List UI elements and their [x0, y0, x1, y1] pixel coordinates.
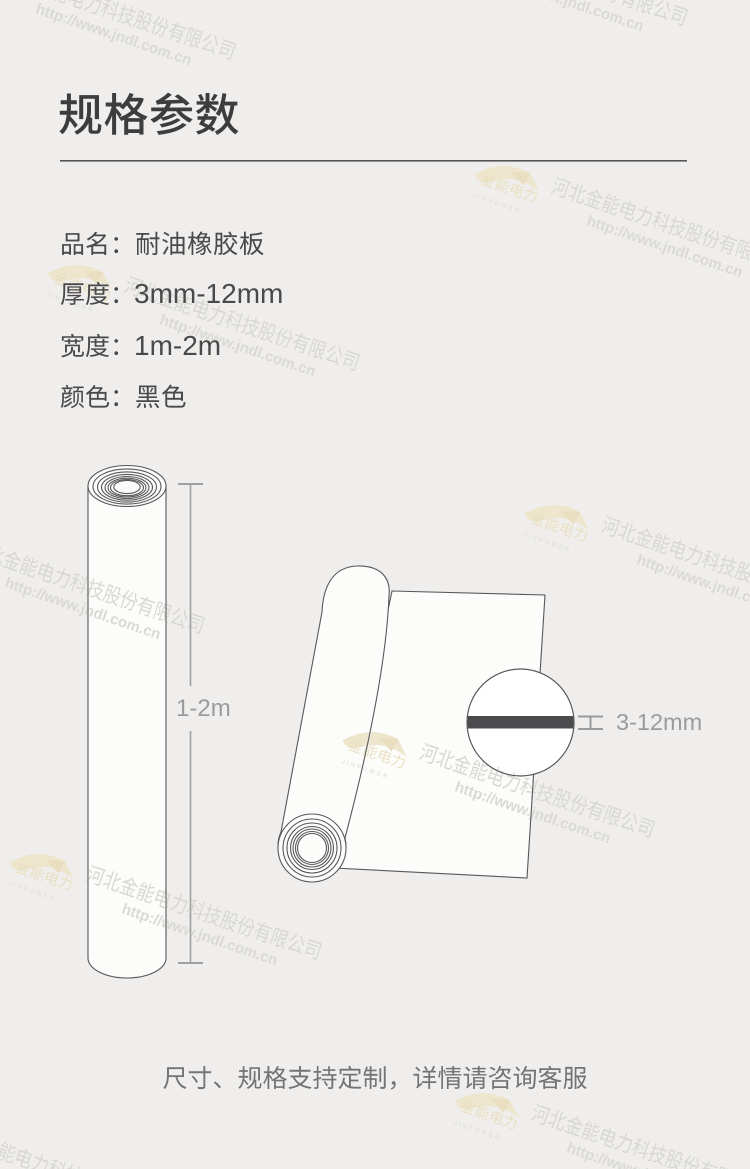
svg-text:3-12mm: 3-12mm — [616, 709, 702, 735]
svg-text:3mm-12mm: 3mm-12mm — [134, 278, 283, 309]
svg-text:1-2m: 1-2m — [176, 695, 231, 722]
